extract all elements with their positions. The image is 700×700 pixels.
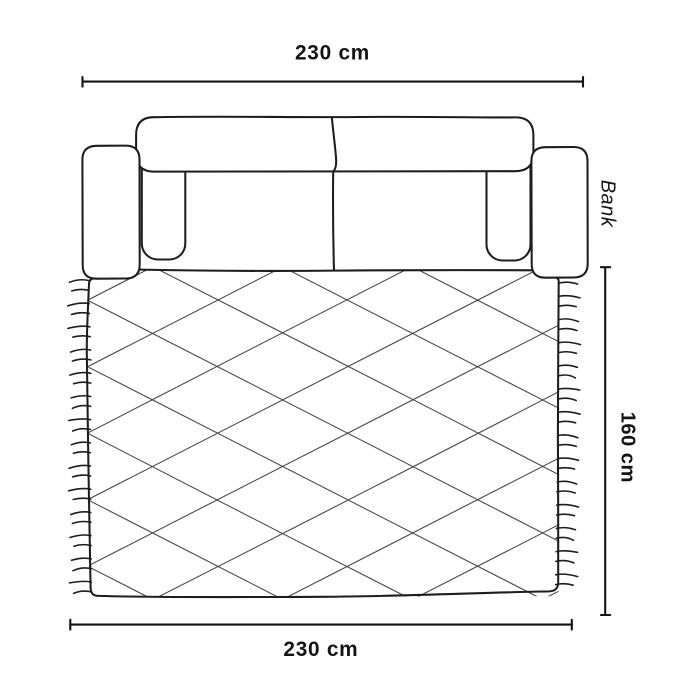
- svg-text:Bank: Bank: [597, 180, 619, 228]
- svg-text:230 cm: 230 cm: [283, 638, 358, 661]
- svg-text:230 cm: 230 cm: [295, 41, 370, 64]
- svg-text:160 cm: 160 cm: [617, 412, 639, 483]
